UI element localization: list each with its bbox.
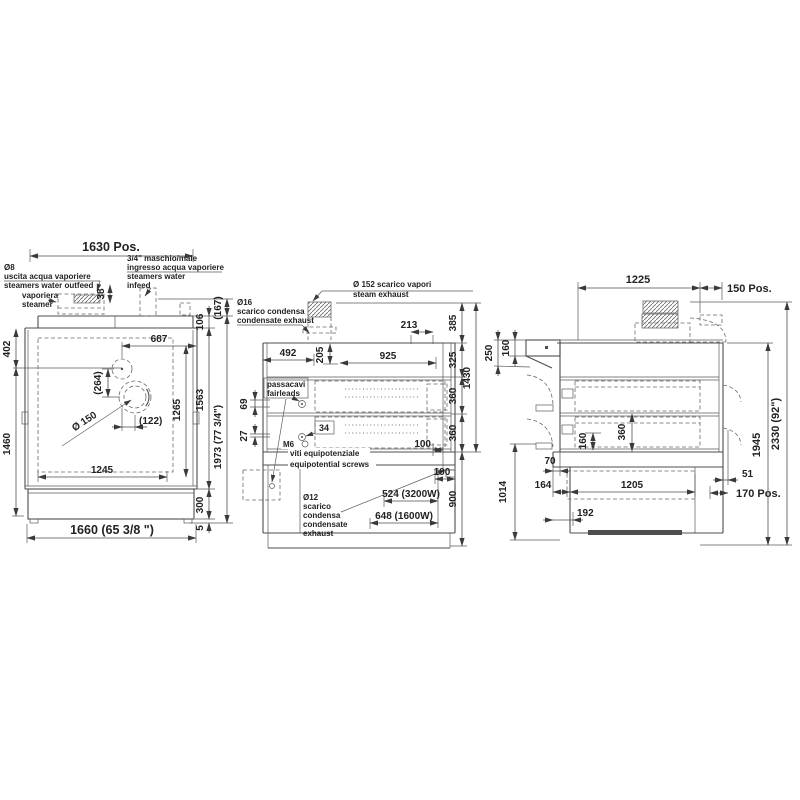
dim-900-label: 900 bbox=[448, 490, 459, 507]
equipotential-label-en: equipotential screws bbox=[290, 460, 370, 469]
dim-524: 524 (3200W) bbox=[382, 489, 440, 507]
infeed-label-en1: steamers water bbox=[127, 272, 185, 281]
cond12-l4: condensate bbox=[303, 520, 348, 529]
cond12-diameter: Ø12 bbox=[303, 493, 319, 502]
condensation-hood bbox=[635, 301, 726, 342]
dim-213: 213 bbox=[401, 320, 433, 344]
back-view: Ø 152 scarico vapori steam exhaust Ø16 s… bbox=[237, 280, 481, 548]
dim-648-label: 648 (1600W) bbox=[375, 511, 433, 522]
dim-106-label: 106 bbox=[195, 313, 206, 330]
steamer-label-en: steamer bbox=[22, 300, 53, 309]
dim-648: 648 (1600W) bbox=[370, 511, 438, 529]
infeed-label: 3/4" maschio/male ingresso acqua vaporie… bbox=[127, 254, 224, 296]
dim-1205-label: 1205 bbox=[621, 480, 644, 491]
dim-360a-label: 360 bbox=[448, 387, 459, 404]
cond12-l3: condensa bbox=[303, 511, 341, 520]
dim-1660: 1660 (65 3/8 ") bbox=[27, 523, 196, 543]
outfeed-label-en: steamers water outfeed bbox=[4, 281, 93, 290]
dim-264: (264) bbox=[93, 369, 120, 397]
dim-27: 27 bbox=[239, 424, 270, 447]
dim-325-label: 325 bbox=[448, 351, 459, 368]
outfeed-label-it: uscita acqua vaporiere bbox=[4, 272, 91, 281]
dim-360-side: 360 bbox=[617, 414, 632, 451]
dim-402: 402 bbox=[2, 329, 16, 368]
fairleads: passacavi fairleads bbox=[243, 378, 308, 500]
dim-167-label: (167) bbox=[213, 296, 224, 319]
outfeed-label: Ø8 uscita acqua vaporiere steamers water… bbox=[4, 263, 100, 291]
infeed-label-en2: infeed bbox=[127, 281, 151, 290]
dim-925: 925 bbox=[340, 351, 436, 369]
infeed-thread-label: 3/4" maschio/male bbox=[127, 254, 198, 263]
equipotential-screws: M6 viti equipotenziale equipotential scr… bbox=[281, 439, 376, 469]
condensate12-label: Ø12 scarico condensa condensate exhaust bbox=[303, 470, 445, 538]
infeed-label-it: ingresso acqua vaporiere bbox=[127, 263, 224, 272]
dim-385-label: 385 bbox=[448, 314, 459, 331]
dim-164-1205: 164 1205 bbox=[535, 475, 695, 497]
dim-250-label: 250 bbox=[484, 344, 495, 361]
dim-492: 492 bbox=[263, 348, 314, 366]
dim-170-pos: 170 Pos. bbox=[710, 486, 781, 500]
dim-264-label: (264) bbox=[93, 371, 104, 394]
outfeed-diameter-label: Ø8 bbox=[4, 263, 15, 272]
oven-three-view-drawing: Ø8 uscita acqua vaporiere steamers water… bbox=[0, 0, 800, 800]
dim-38-label: 38 bbox=[96, 288, 107, 300]
dim-51-label: 51 bbox=[742, 469, 754, 480]
dim-100: 100 bbox=[414, 439, 443, 456]
front-right-dims: 106 (167) 1563 1973 (77 3/4") 300 5 bbox=[158, 296, 233, 533]
dim-122-label: (122) bbox=[139, 416, 162, 427]
dim-687-label: 687 bbox=[151, 334, 168, 345]
dim-190: 190 bbox=[434, 467, 455, 484]
steamer-label-it: vaporiera bbox=[22, 291, 59, 300]
dim-150-pos-label: 150 Pos. bbox=[727, 283, 772, 295]
dim-925-label: 925 bbox=[380, 351, 397, 362]
dim-69: 69 bbox=[239, 390, 270, 417]
dim-27-label: 27 bbox=[239, 430, 250, 442]
dim-1945-label: 1945 bbox=[751, 433, 763, 457]
fairleads-label-en: fairleads bbox=[267, 389, 300, 398]
dim-1225-label: 1225 bbox=[626, 274, 650, 286]
dim-492-label: 492 bbox=[280, 348, 297, 359]
dim-diameter-150: Ø 150 bbox=[70, 410, 99, 434]
steam-exhaust-label: Ø 152 scarico vapori steam exhaust bbox=[313, 280, 473, 301]
front-view: Ø8 uscita acqua vaporiere steamers water… bbox=[2, 240, 233, 543]
cond16-diameter: Ø16 bbox=[237, 298, 253, 307]
dim-150-pos: 150 Pos. bbox=[700, 282, 772, 300]
steamer-label: vaporiera steamer bbox=[22, 291, 59, 309]
dim-70: 70 bbox=[543, 452, 570, 476]
dim-1630-label: 1630 Pos. bbox=[82, 240, 140, 254]
equipotential-label-it: viti equipotenziale bbox=[290, 449, 360, 458]
m6-label: M6 bbox=[283, 440, 295, 449]
dim-2330-label: 2330 (92") bbox=[770, 398, 782, 451]
dim-34-label: 34 bbox=[319, 423, 329, 433]
back-right-dims: 385 325 360 360 900 1430 bbox=[336, 303, 481, 546]
condensate16-label: Ø16 scarico condensa condensate exhaust bbox=[237, 298, 314, 333]
dim-164-label: 164 bbox=[535, 480, 552, 491]
dim-34: 34 bbox=[306, 421, 334, 436]
dim-160b-label: 160 bbox=[578, 432, 589, 449]
dim-1245-label: 1245 bbox=[91, 465, 114, 476]
dim-1014-label: 1014 bbox=[498, 480, 509, 503]
cond16-label-en: condensate exhaust bbox=[237, 316, 314, 325]
dim-1460: 1460 bbox=[2, 368, 24, 516]
dim-69-label: 69 bbox=[239, 398, 250, 410]
dim-190-label: 190 bbox=[434, 467, 451, 478]
dim-524-label: 524 (3200W) bbox=[382, 489, 440, 500]
dim-2330: 2330 (92") bbox=[690, 302, 792, 545]
dim-170-pos-label: 170 Pos. bbox=[736, 488, 781, 500]
cond12-l2: scarico bbox=[303, 502, 331, 511]
dim-100-label: 100 bbox=[414, 439, 431, 450]
dim-360b-label: 360 bbox=[448, 424, 459, 441]
dim-122: (122) bbox=[112, 408, 162, 431]
dim-213-label: 213 bbox=[401, 320, 418, 331]
dim-360-side-label: 360 bbox=[617, 423, 628, 440]
side-view: 1225 150 Pos. 250 160 160 bbox=[484, 274, 792, 545]
dim-1265-label: 1265 bbox=[172, 398, 183, 421]
drain-detail: Ø 150 bbox=[62, 359, 151, 446]
dim-1265: 1265 bbox=[172, 346, 186, 477]
dim-192: 192 bbox=[543, 508, 594, 526]
technical-drawing-page: Ø8 uscita acqua vaporiere steamers water… bbox=[0, 0, 800, 800]
dim-1245: 1245 bbox=[38, 465, 167, 482]
cond16-label-it: scarico condensa bbox=[237, 307, 305, 316]
side-body-outline bbox=[526, 340, 741, 535]
dim-160a-label: 160 bbox=[501, 339, 512, 356]
dim-205: 205 bbox=[315, 344, 338, 364]
dim-300-label: 300 bbox=[195, 496, 206, 513]
dim-1430-label: 1430 bbox=[462, 366, 473, 389]
dim-1460-label: 1460 bbox=[2, 432, 13, 455]
dim-70-label: 70 bbox=[544, 456, 556, 467]
dim-1563-label: 1563 bbox=[195, 388, 206, 411]
dim-205-label: 205 bbox=[315, 346, 326, 363]
dim-1973-label: 1973 (77 3/4") bbox=[213, 405, 224, 469]
cond12-l5: exhaust bbox=[303, 529, 334, 538]
steam-exhaust-label-it: Ø 152 scarico vapori bbox=[353, 280, 431, 289]
dim-5-label: 5 bbox=[195, 525, 206, 531]
dim-1225: 1225 bbox=[578, 274, 700, 340]
dim-1660-label: 1660 (65 3/8 ") bbox=[70, 523, 154, 537]
fairleads-label-it: passacavi bbox=[267, 380, 305, 389]
dim-402-label: 402 bbox=[2, 340, 13, 357]
dim-687: 687 bbox=[122, 334, 196, 358]
dim-192-label: 192 bbox=[577, 508, 594, 519]
